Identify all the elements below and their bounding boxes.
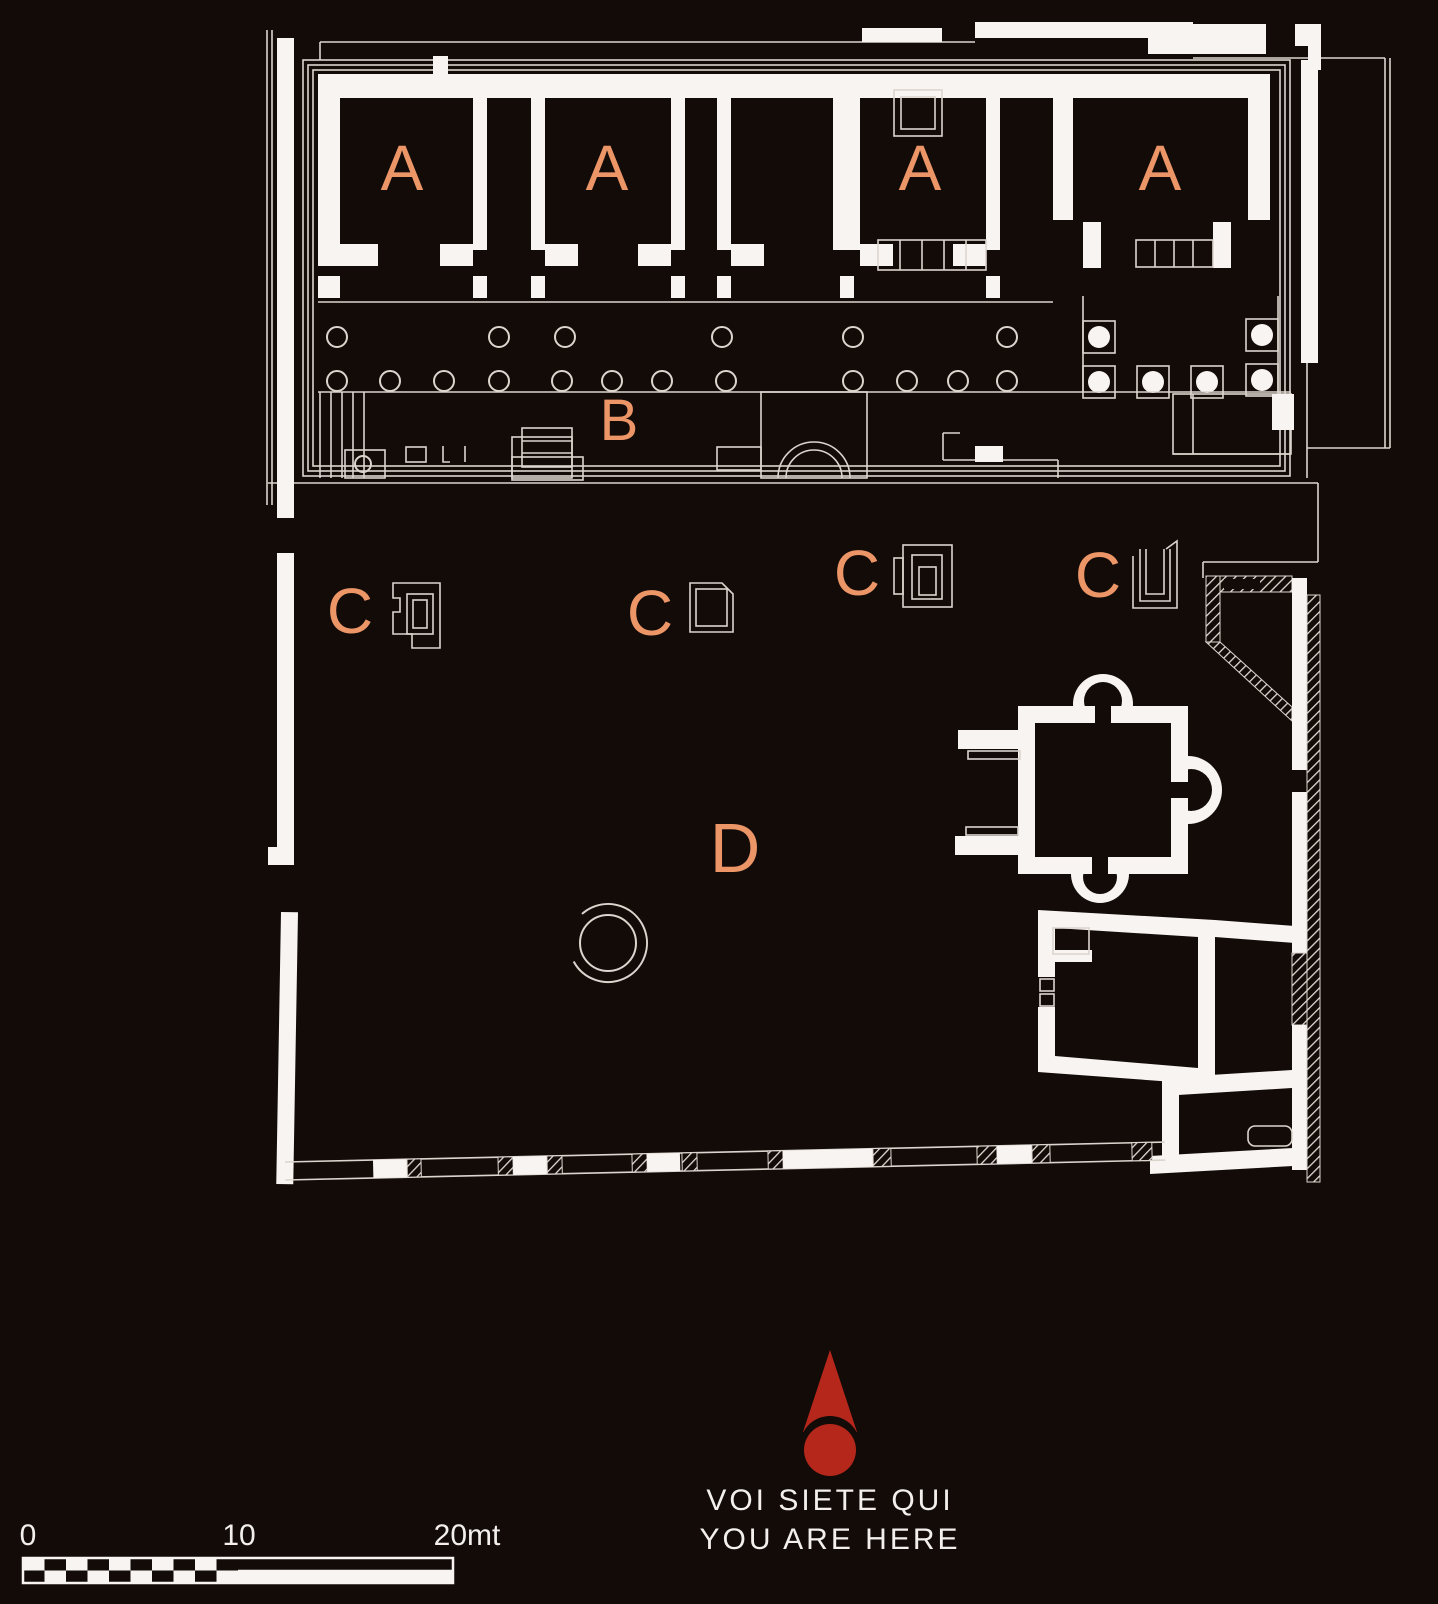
- altar-label-c1: C: [327, 575, 373, 647]
- you-are-here-text-en: YOU ARE HERE: [699, 1523, 960, 1556]
- altar-label-c3: C: [834, 537, 880, 609]
- temple-arm-north: [958, 730, 1020, 749]
- altar-label-c2: C: [627, 577, 673, 649]
- scale-bar-checker: [23, 1558, 238, 1583]
- scale-bar-solid-half: [238, 1571, 453, 1584]
- room-label-a1: A: [381, 132, 424, 204]
- scale-tick-10: 10: [222, 1519, 255, 1552]
- you-are-here-text-it: VOI SIETE QUI: [706, 1484, 953, 1517]
- scale-tick-20: 20mt: [434, 1519, 501, 1552]
- room-label-a3: A: [899, 132, 942, 204]
- scale-tick-0: 0: [20, 1519, 37, 1552]
- site-plan: A A A A B C C C C D VOI SIETE QUI YOU AR…: [0, 0, 1438, 1604]
- altar-label-c4: C: [1075, 539, 1121, 611]
- room-label-a4: A: [1139, 132, 1182, 204]
- temple-arm-south: [955, 836, 1019, 855]
- east-boundary-wall: [1292, 578, 1320, 1182]
- room-label-b: B: [600, 388, 639, 453]
- courtyard-label-d: D: [710, 809, 761, 887]
- room-label-a2: A: [586, 132, 629, 204]
- site-map-panel: A A A A B C C C C D VOI SIETE QUI YOU AR…: [0, 0, 1438, 1604]
